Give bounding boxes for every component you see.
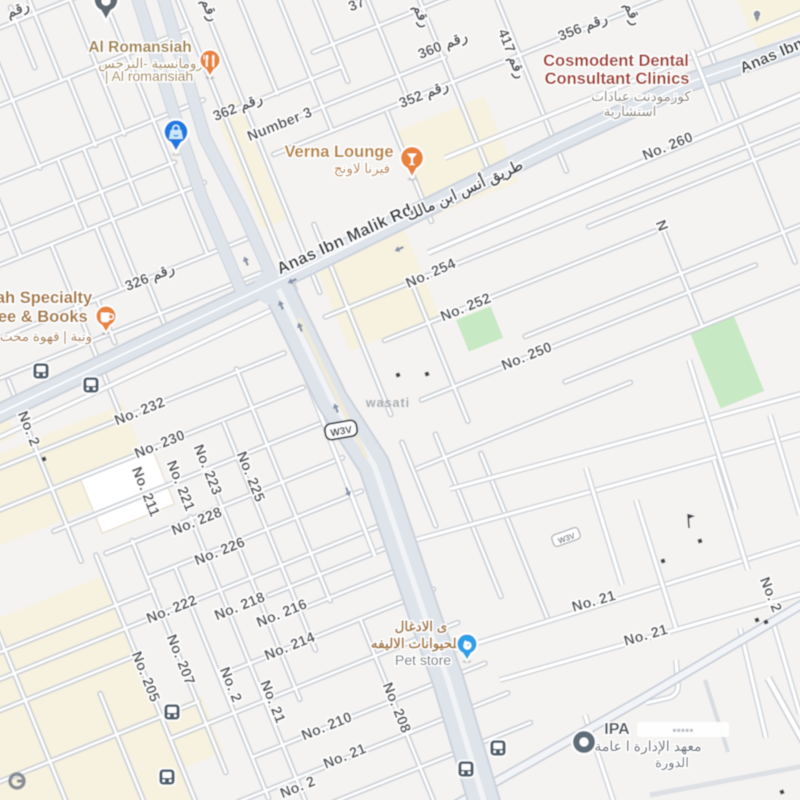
svg-text:وتبة | قهوة مخت: وتبة | قهوة مخت	[0, 329, 92, 345]
svg-text:Pet store: Pet store	[395, 652, 451, 668]
svg-text:معهد الإدارة ا عامة: معهد الإدارة ا عامة	[594, 738, 701, 755]
svg-text:ah Specialty: ah Specialty	[0, 289, 93, 307]
svg-text:wasati: wasati	[365, 396, 410, 410]
svg-text:Verna Lounge: Verna Lounge	[284, 143, 393, 161]
svg-text:كوزمودنت عبادات: كوزمودنت عبادات	[591, 89, 691, 105]
svg-text:Cosmodent Dental: Cosmodent Dental	[543, 52, 689, 70]
svg-text:▪▪▪▪▪: ▪▪▪▪▪	[672, 723, 693, 737]
svg-text:IPA: IPA	[604, 721, 630, 738]
svg-text:استشارية: استشارية	[604, 104, 657, 120]
svg-text:Consultant Clinics: Consultant Clinics	[545, 70, 690, 88]
svg-text:| Al romansiah: | Al romansiah	[105, 68, 193, 84]
svg-text:Al Romansiah: Al Romansiah	[88, 39, 191, 56]
svg-text:fee & Books: fee & Books	[0, 308, 88, 326]
svg-text:الدورة: الدورة	[655, 755, 689, 771]
svg-text:فيرنا لاونج: فيرنا لاونج	[334, 161, 390, 177]
svg-text:ى الادغال: ى الادغال	[395, 619, 448, 634]
svg-text:للحيوانات الاليفه: للحيوانات الاليفه	[371, 636, 461, 652]
